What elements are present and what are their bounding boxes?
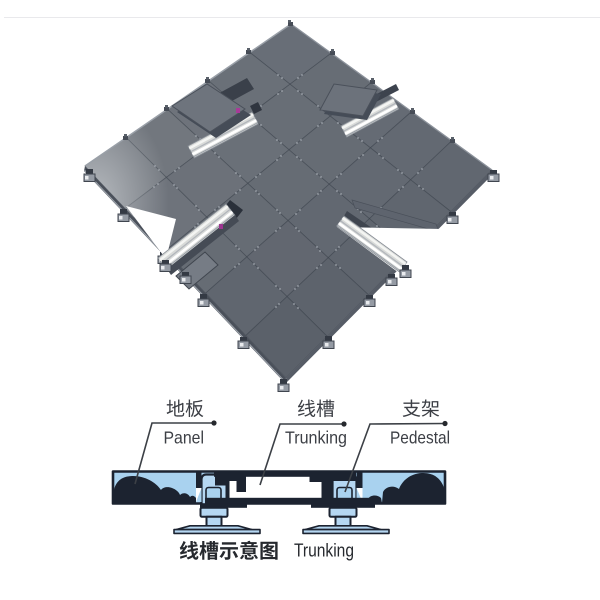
svg-text:Trunking: Trunking <box>285 428 347 448</box>
svg-text:Panel: Panel <box>164 428 205 448</box>
svg-text:Pedestal: Pedestal <box>390 428 450 448</box>
svg-text:Trunking: Trunking <box>294 540 354 561</box>
